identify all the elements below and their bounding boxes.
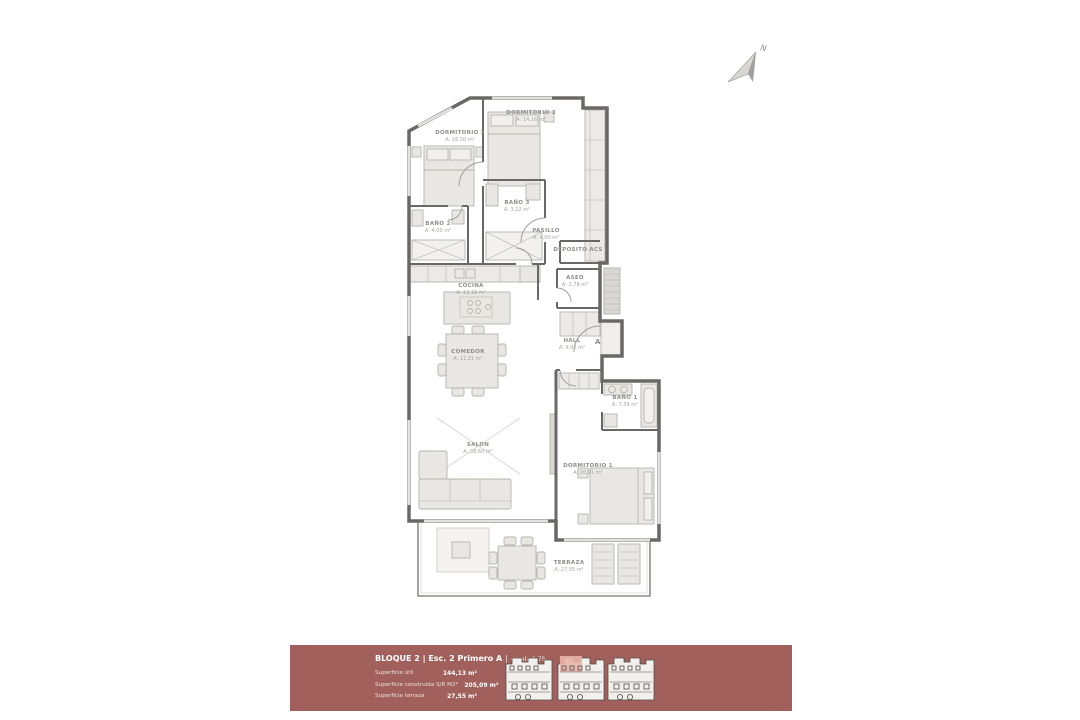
furniture — [410, 110, 657, 589]
bed-dormitorio-1 — [578, 468, 654, 524]
floor-plan-svg: N A — [0, 0, 1080, 720]
salon-rug-cross — [437, 418, 520, 474]
dining-table — [438, 326, 506, 396]
site-plan-thumbnail — [502, 650, 660, 706]
entry-door-letter: A — [595, 338, 601, 346]
page: N A DORMITORIO 3A: 14,16 m² DORMITORIO 2… — [0, 0, 1080, 720]
terrace-furniture — [437, 528, 640, 589]
surface-label: Superficie útil — [375, 670, 414, 677]
kitchen-counter — [410, 266, 540, 282]
footer-bar: BLOQUE 2 | Esc. 2 Primero A|escala 1:75 … — [290, 645, 792, 711]
surface-value: 205,09 m² — [464, 682, 498, 689]
north-arrow-icon: N — [728, 43, 767, 82]
sofa — [419, 451, 511, 509]
tv-unit — [550, 414, 555, 474]
footer-title: BLOQUE 2 | Esc. 2 Primero A|escala 1:75 — [375, 654, 505, 663]
surface-row-construida: Superficie construida S/R M2* 205,09 m² — [375, 682, 477, 689]
fixtures-bano-1 — [604, 384, 657, 427]
surface-row-terraza: Superficie terraza 27,55 m² — [375, 693, 477, 700]
surface-label: Superficie terraza — [375, 693, 425, 700]
surface-label: Superficie construida S/R M2* — [375, 682, 458, 689]
closet-dormitorio-3 — [585, 110, 605, 261]
hall-wardrobe — [560, 312, 600, 336]
kitchen-island — [444, 292, 510, 324]
surface-value: 144,13 m² — [443, 670, 477, 677]
fixtures-bano-2 — [412, 210, 465, 260]
bed-dormitorio-3 — [488, 112, 554, 186]
surface-table: Superficie útil 144,13 m² Superficie con… — [375, 670, 477, 700]
bed-dormitorio-2 — [412, 146, 483, 206]
north-label: N — [760, 43, 768, 53]
stair-core — [601, 268, 621, 355]
surface-value: 27,55 m² — [447, 693, 477, 700]
footer-info: BLOQUE 2 | Esc. 2 Primero A|escala 1:75 … — [375, 654, 505, 705]
surface-row-util: Superficie útil 144,13 m² — [375, 670, 477, 677]
fixtures-bano-3 — [486, 184, 542, 260]
unit-title: BLOQUE 2 | Esc. 2 Primero A — [375, 654, 502, 663]
